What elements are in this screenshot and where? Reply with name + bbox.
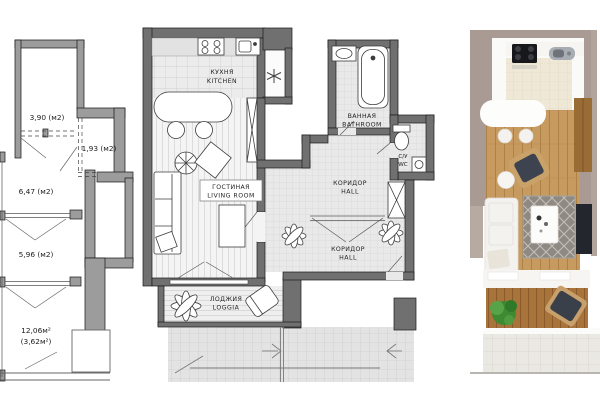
loggia-label-ru: ЛОДЖИЯ xyxy=(210,296,242,303)
schematic-walls xyxy=(0,40,133,381)
bathroom-label-ru: ВАННАЯ xyxy=(348,113,377,120)
render-coffee-table xyxy=(531,206,558,243)
living-label-ru: ГОСТИНАЯ xyxy=(212,184,250,191)
tall-cupboard-icon xyxy=(247,98,257,162)
loggia-label-en: LOGGIA xyxy=(213,305,240,312)
bathtub-icon xyxy=(358,46,388,108)
area-label-6: (3,62м²) xyxy=(21,337,52,346)
hall-lower-label-en: HALL xyxy=(339,255,357,262)
detailed-plan: КУХНЯ KITCHEN ГОСТИНАЯ LIVING ROOM ВАННА… xyxy=(143,28,434,382)
wc-label-ru: С/У xyxy=(398,154,408,160)
chair-round-icon xyxy=(175,152,197,174)
living-window xyxy=(170,280,248,284)
hall-upper-label-ru: КОРИДОР xyxy=(333,180,367,187)
terrace-floor xyxy=(168,327,414,382)
area-label-1: 3,90 (м2) xyxy=(30,113,65,122)
schematic-plan: 3,90 (м2) 1,93 (м2) 6,47 (м2) 5,96 (м2) … xyxy=(0,40,133,381)
plant-icon-loggia xyxy=(171,291,201,321)
render-tv xyxy=(576,204,592,254)
living-label-en: LIVING ROOM xyxy=(207,193,255,200)
plant-icon-corridor xyxy=(282,224,306,248)
area-label-4: 5,96 (м2) xyxy=(19,250,54,259)
render-wall-left-strip xyxy=(470,206,483,258)
schematic-balcony xyxy=(0,330,110,380)
area-label-3: 6,47 (м2) xyxy=(19,187,54,196)
area-label-5: 12,06м² xyxy=(21,326,51,335)
render-sink xyxy=(549,47,575,60)
hall-floor-upper xyxy=(310,143,328,272)
floor-plan-sheet: 3,90 (м2) 1,93 (м2) 6,47 (м2) 5,96 (м2) … xyxy=(0,0,600,400)
render-terrace-floor xyxy=(483,334,600,372)
stove-icon xyxy=(198,38,224,55)
render-plan xyxy=(470,30,600,373)
kitchen-label-en: KITCHEN xyxy=(207,78,237,85)
render-cooktop xyxy=(512,44,537,69)
kitchen-sink-icon xyxy=(236,38,260,55)
coffee-table-icon xyxy=(219,205,245,247)
hall-lower-label-ru: КОРИДОР xyxy=(331,246,365,253)
hall-wardrobe-icon xyxy=(388,182,405,218)
corridor-floor xyxy=(265,168,310,272)
plant-icon-hall xyxy=(379,221,403,245)
toilet-icon xyxy=(393,125,410,150)
area-label-2: 1,93 (м2) xyxy=(82,144,117,153)
kitchen-label-ru: КУХНЯ xyxy=(210,69,233,76)
render-terrace-gap xyxy=(483,328,600,334)
bath-sink-icon xyxy=(332,46,356,61)
bathroom-label-en: BATHROOM xyxy=(342,122,382,129)
hall-upper-label-en: HALL xyxy=(341,189,359,196)
render-sofa xyxy=(485,198,518,274)
wc-basin-icon xyxy=(412,157,426,172)
sofa-icon xyxy=(154,172,181,254)
render-side-table xyxy=(498,172,515,189)
wc-label-en: WC xyxy=(398,162,408,168)
